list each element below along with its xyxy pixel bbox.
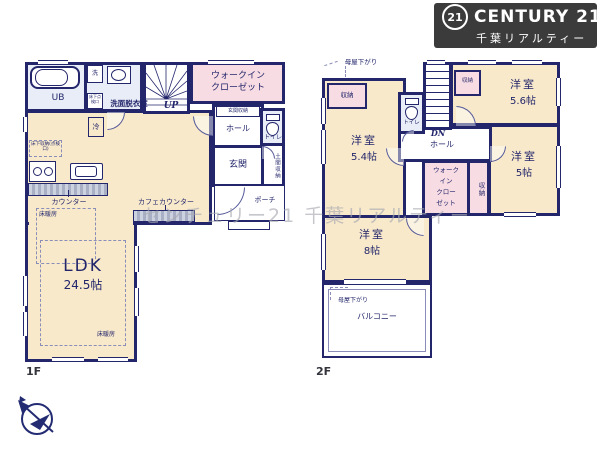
f1-ldk-label: LDK 24.5帖 <box>48 256 118 293</box>
window <box>556 78 561 106</box>
north-arrow-compass-icon <box>10 392 62 444</box>
f2-room56-label: 洋室 5.6帖 <box>492 76 554 107</box>
f2-room56-size: 5.6帖 <box>492 92 554 107</box>
toilet-icon <box>405 98 419 105</box>
window <box>321 234 326 270</box>
f2-room56-storage-label: 収納 <box>456 78 479 85</box>
f2-moya-top-label: 母屋下がり <box>336 58 386 66</box>
bathtub-icon <box>35 69 68 86</box>
f2-room54-storage-label: 収納 <box>329 91 365 99</box>
window <box>208 60 254 65</box>
f1-wic-label-1: ウォークイン <box>200 71 276 82</box>
window <box>23 117 28 132</box>
f1-wic-label-2: クローゼット <box>200 83 276 94</box>
f2-room5-name: 洋室 <box>493 148 555 164</box>
f1-floor-label: 1F <box>26 365 41 378</box>
stove-icon <box>29 161 56 182</box>
window <box>23 312 28 336</box>
window <box>52 357 84 362</box>
window <box>504 212 536 217</box>
f2-room54-label: 洋室 5.4帖 <box>330 132 398 163</box>
f2-wic-label-1: ウォーク <box>425 166 467 174</box>
window <box>38 60 68 65</box>
century21-logo: 21 CENTURY 21 千葉リアルティー <box>434 3 597 48</box>
f1-underfloor-storage-label: 床下収納(点検口) <box>31 142 60 152</box>
f2-room8-label: 洋室 8帖 <box>342 226 402 257</box>
window <box>468 60 496 65</box>
f2-wic-label-2: イン <box>425 177 467 185</box>
window <box>134 288 139 316</box>
floor-plan-page: 21 CENTURY 21 千葉リアルティー <box>0 0 600 450</box>
burner-icon <box>33 167 42 176</box>
sink-basin-icon <box>111 69 126 81</box>
f2-room54-name: 洋室 <box>330 132 398 148</box>
f2-room8-size: 8帖 <box>342 242 402 257</box>
f1-ldk-name: LDK <box>48 256 118 276</box>
f2-storage-label: 収納 <box>472 172 485 206</box>
f1-toilet-label: トイレ <box>261 134 285 142</box>
f1-ub-label: UB <box>40 93 76 104</box>
brand-subtitle: 千葉リアルティー <box>476 30 597 46</box>
c21-seal-icon: 21 <box>442 4 468 30</box>
f2-toilet-room <box>398 92 425 134</box>
window <box>512 60 542 65</box>
f2-hall-label: ホール <box>420 140 464 150</box>
window <box>98 357 128 362</box>
f2-room5-size: 5帖 <box>493 164 555 179</box>
f2-room54-size: 5.4帖 <box>330 148 398 163</box>
f1-ldk-size: 24.5帖 <box>48 276 118 293</box>
f1-counter-label: カウンター <box>38 198 100 207</box>
f2-stairs <box>423 62 452 130</box>
f2-moya-bottom-label: 母屋下がり <box>338 297 386 305</box>
f2-room5-label: 洋室 5帖 <box>493 148 555 179</box>
burner-icon <box>44 167 53 176</box>
brand-name: CENTURY 21 <box>474 7 600 27</box>
window <box>23 276 28 306</box>
f1-floor-heating-label-1: 床暖房 <box>39 211 73 219</box>
f1-washroom-label: 洗面脱衣室 <box>100 99 158 108</box>
f2-stairs-dn-label: DN <box>427 128 449 138</box>
f1-stairs-up-label: UP <box>158 101 184 112</box>
window <box>321 130 326 164</box>
window <box>134 246 139 272</box>
window <box>344 279 406 285</box>
kitchen-sink-icon <box>75 166 97 177</box>
logo-row: 21 CENTURY 21 <box>442 4 597 30</box>
leader-line <box>68 190 69 197</box>
f2-balcony-label: バルコニー <box>342 312 412 322</box>
f2-floor-label: 2F <box>316 365 331 378</box>
toilet-icon <box>405 106 418 120</box>
window <box>556 146 561 188</box>
f1-washer-label: 洗 <box>87 70 103 78</box>
f2-toilet-label: トイレ <box>399 120 424 127</box>
f1-floor-heating-label-2: 床暖房 <box>88 331 124 339</box>
logo-circle-text: 21 <box>447 11 462 24</box>
toilet-icon <box>266 114 280 121</box>
f2-room8-name: 洋室 <box>342 226 402 242</box>
f1-fridge-label: 冷 <box>88 123 104 132</box>
window <box>321 98 326 124</box>
annotation-leader <box>345 66 346 77</box>
f1-hall-label: ホール <box>218 124 258 134</box>
f2-room56-name: 洋室 <box>492 76 554 92</box>
f1-entrance-storage-label: 玄関収納 <box>217 108 259 114</box>
f2-wic-label-3: クロー <box>425 188 467 196</box>
window <box>427 60 445 65</box>
watermark: センチュリー21 千葉リアルティー <box>142 201 472 228</box>
f1-doma-label: 土間収納 <box>266 148 280 184</box>
f1-entrance-label: 玄関 <box>220 160 256 171</box>
